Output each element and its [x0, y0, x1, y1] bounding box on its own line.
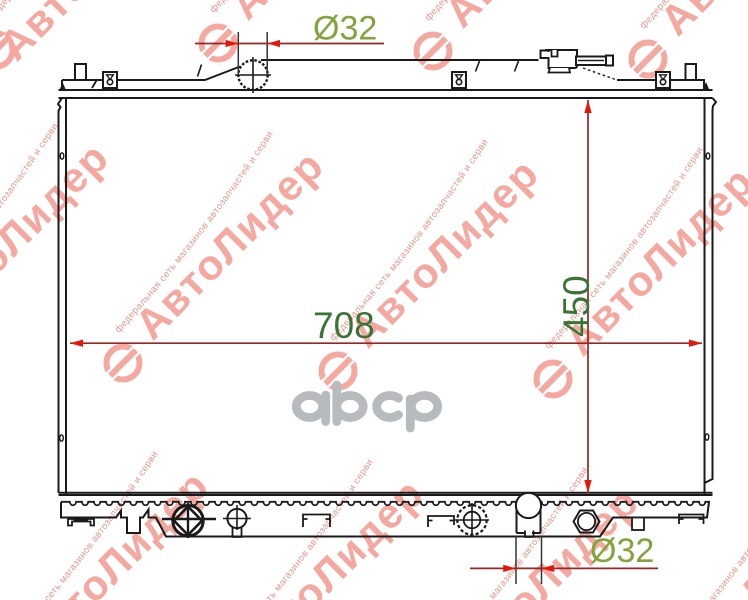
- svg-text:450: 450: [556, 275, 597, 337]
- svg-text:708: 708: [313, 305, 375, 346]
- svg-text:Ø32: Ø32: [590, 532, 654, 570]
- svg-text:Ø32: Ø32: [313, 10, 377, 48]
